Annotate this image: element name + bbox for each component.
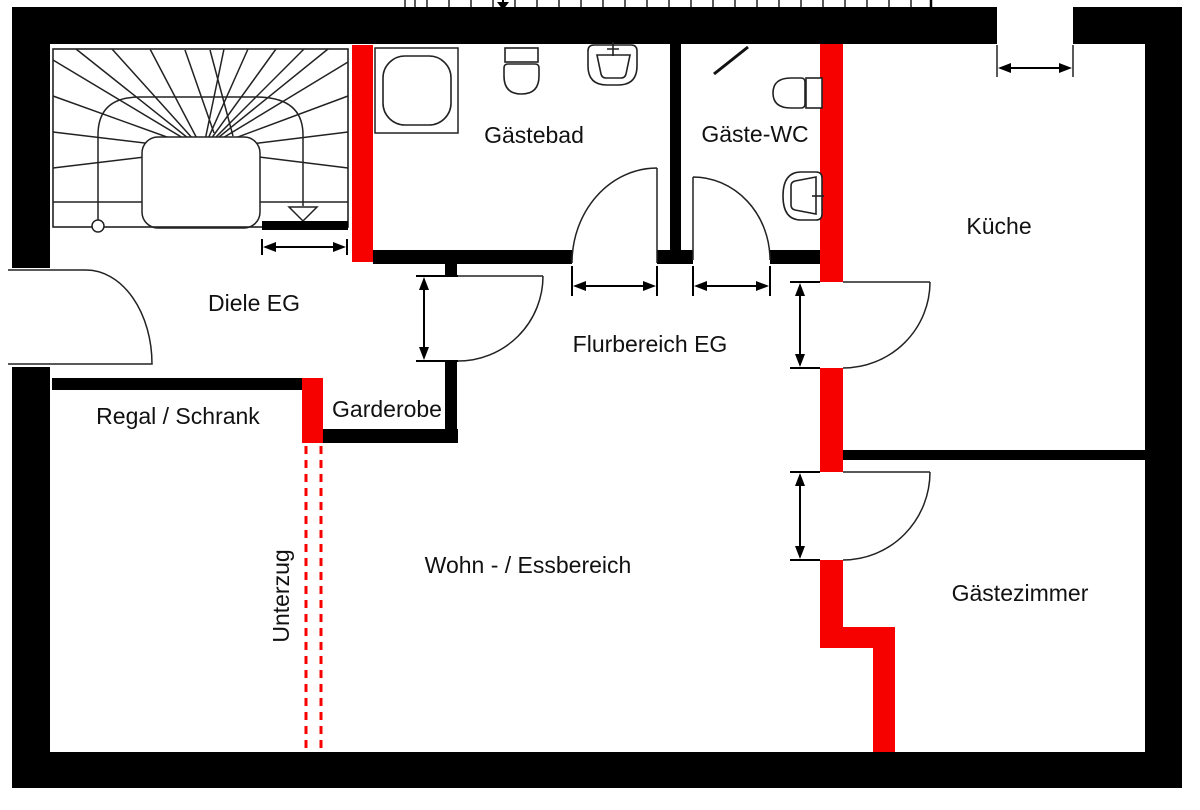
room-label-garderobe: Garderobe: [332, 396, 442, 422]
floorplan-page: Gästebad Gäste-WC Küche Diele EG Flurber…: [0, 0, 1200, 810]
wall-hall-b: [657, 250, 693, 264]
stair-walkline-start-icon: [92, 220, 104, 232]
staircase: [53, 49, 348, 232]
wall-kueche-divider: [843, 450, 1145, 460]
dim-kueche-door: [790, 282, 820, 368]
wall-right: [1145, 7, 1182, 788]
wc-toilet-tank-icon: [806, 78, 822, 108]
dim-gaestezimmer-door: [790, 472, 820, 560]
stair-tick-marks: [405, 0, 911, 8]
shower-tray-icon: [383, 56, 451, 125]
wall-bottom: [12, 752, 1182, 788]
dim-gaeste-wc-door: [693, 266, 770, 296]
wall-hall-c: [770, 250, 822, 264]
floorplan-canvas: Gästebad Gäste-WC Küche Diele EG Flurber…: [0, 0, 1200, 810]
wc-toilet-bowl-icon: [773, 78, 805, 108]
red-wall-stair: [352, 45, 373, 262]
room-label-gaeste-wc: Gäste-WC: [701, 121, 808, 147]
dim-stair-opening: [262, 239, 347, 255]
room-label-gaestebad: Gästebad: [484, 122, 584, 148]
wall-regal-schrank: [52, 378, 302, 390]
dim-gaestebad-door: [572, 266, 657, 296]
wall-hall-a: [373, 250, 572, 264]
gaeste-wc-door-swing: [693, 177, 770, 260]
red-wall-main-upper: [820, 44, 843, 282]
red-wall-garderobe-block: [302, 378, 323, 443]
red-wall-jog-horizontal: [820, 627, 895, 648]
entrance-door-swing: [8, 270, 152, 364]
toilet-tank-icon: [505, 48, 538, 62]
room-label-flurbereich-eg: Flurbereich EG: [573, 331, 728, 357]
room-label-regal-schrank: Regal / Schrank: [96, 403, 260, 429]
diele-garderobe-door-swing: [458, 276, 543, 361]
wall-garderobe-bottom: [323, 429, 458, 443]
red-wall-jog-vertical: [873, 648, 895, 752]
toilet-bowl-icon: [504, 64, 539, 94]
stair-landing: [142, 137, 260, 228]
wc-niche-diagonal-line: [714, 47, 748, 74]
kueche-door-swing: [843, 282, 930, 368]
beam-label-unterzug: Unterzug: [268, 549, 294, 642]
gaestezimmer-door-swing: [843, 472, 930, 560]
dim-top-opening: [997, 45, 1073, 77]
gaestebad-door-swing: [572, 168, 657, 263]
room-label-kueche: Küche: [966, 213, 1031, 239]
walls: [12, 7, 1182, 788]
wall-left-lower: [12, 367, 50, 752]
room-label-diele-eg: Diele EG: [208, 290, 300, 316]
wall-garderobe-vert: [445, 360, 457, 443]
wall-top-left: [12, 7, 997, 44]
room-label-wohn-essbereich: Wohn - / Essbereich: [425, 552, 632, 578]
room-label-gaestezimmer: Gästezimmer: [952, 580, 1089, 606]
red-wall-main-mid: [820, 368, 843, 472]
stair-walkline-arrow-icon: [289, 207, 317, 221]
wall-garderobe-stub: [445, 258, 457, 275]
dimension-arrows: [262, 45, 1073, 560]
dim-diele-garderobe-door: [416, 276, 458, 361]
wall-stair-bar: [262, 221, 348, 230]
wall-wc-left: [670, 44, 681, 264]
wall-left-upper: [12, 7, 50, 268]
